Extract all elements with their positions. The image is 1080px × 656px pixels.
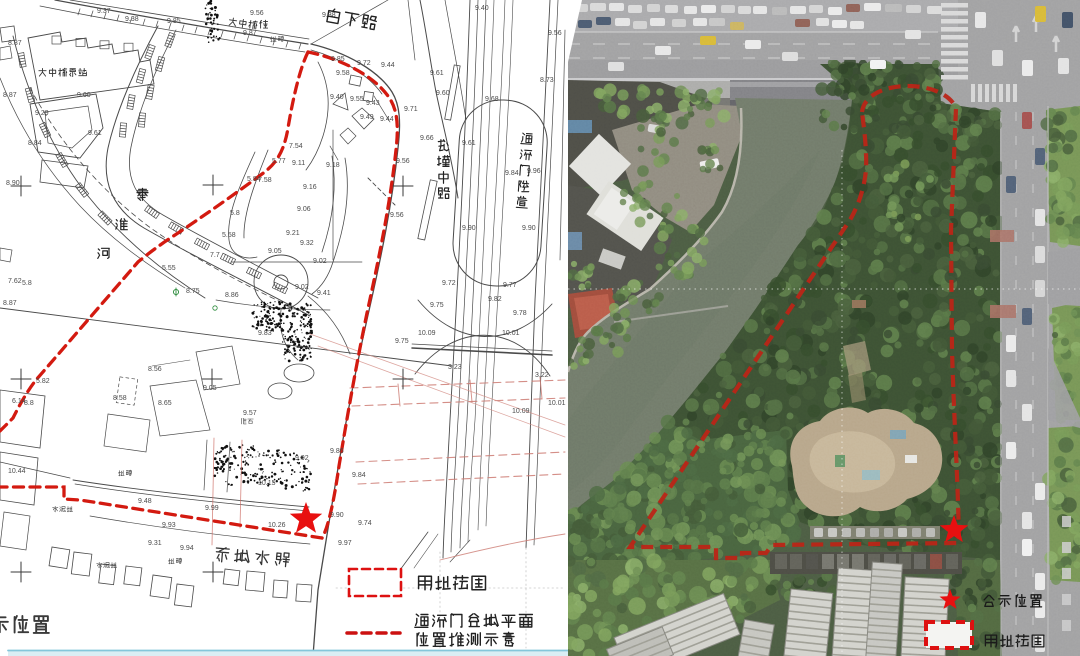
svg-text:9.60: 9.60 [436, 90, 450, 97]
svg-text:8.87: 8.87 [8, 40, 22, 47]
svg-text:9.40: 9.40 [475, 5, 489, 12]
svg-text:9.68: 9.68 [485, 96, 499, 103]
svg-text:9.48: 9.48 [138, 498, 152, 505]
svg-text:10.01: 10.01 [548, 400, 566, 407]
svg-text:10.09: 10.09 [512, 408, 530, 415]
svg-text:8.58: 8.58 [113, 395, 127, 402]
svg-text:9.71: 9.71 [404, 106, 418, 113]
svg-text:5.77: 5.77 [272, 158, 286, 165]
svg-text:9.83: 9.83 [258, 330, 272, 337]
svg-text:9.90: 9.90 [462, 225, 476, 232]
svg-text:9.05: 9.05 [268, 248, 282, 255]
svg-text:9.16: 9.16 [303, 184, 317, 191]
svg-text:9.40: 9.40 [330, 94, 344, 101]
svg-text:9.32: 9.32 [300, 240, 314, 247]
svg-text:9.02: 9.02 [295, 284, 309, 291]
svg-text:9.56: 9.56 [390, 212, 404, 219]
svg-text:3.23: 3.23 [448, 364, 462, 371]
svg-text:9.11: 9.11 [292, 160, 305, 167]
svg-text:9.99: 9.99 [205, 505, 219, 512]
svg-text:9.56: 9.56 [548, 30, 562, 37]
svg-text:9.55: 9.55 [350, 96, 364, 103]
svg-text:9.29: 9.29 [35, 110, 49, 117]
svg-text:9.66: 9.66 [420, 135, 434, 142]
svg-text:5.8: 5.8 [230, 210, 240, 217]
svg-text:9.87: 9.87 [243, 30, 257, 37]
svg-text:8.73: 8.73 [540, 77, 554, 84]
svg-text:9.49: 9.49 [360, 114, 374, 121]
svg-text:10.44: 10.44 [8, 468, 26, 475]
svg-text:10.01: 10.01 [502, 330, 520, 337]
svg-text:5.8: 5.8 [22, 280, 32, 287]
svg-text:9.86: 9.86 [330, 448, 344, 455]
svg-text:9.74: 9.74 [358, 520, 372, 527]
svg-text:10.15: 10.15 [258, 480, 276, 487]
svg-text:9.94: 9.94 [180, 545, 194, 552]
svg-text:9.85: 9.85 [331, 56, 345, 63]
svg-text:9.75: 9.75 [430, 302, 444, 309]
svg-text:5.55: 5.55 [162, 265, 176, 272]
svg-text:9.61: 9.61 [462, 140, 476, 147]
svg-text:9.02: 9.02 [313, 258, 327, 265]
svg-text:8.87: 8.87 [3, 92, 17, 99]
svg-text:9.90: 9.90 [522, 225, 536, 232]
svg-text:9.93: 9.93 [162, 522, 176, 529]
svg-text:8.84: 8.84 [28, 140, 42, 147]
svg-text:9.61: 9.61 [88, 130, 102, 137]
svg-text:9.21: 9.21 [286, 230, 300, 237]
svg-text:8.87: 8.87 [3, 300, 17, 307]
svg-text:3.22: 3.22 [535, 372, 549, 379]
svg-text:9.58: 9.58 [336, 70, 350, 77]
svg-text:8.90: 8.90 [6, 180, 20, 187]
svg-text:9.61: 9.61 [430, 70, 444, 77]
svg-text:8.8: 8.8 [24, 400, 34, 407]
svg-text:8.75: 8.75 [186, 288, 200, 295]
svg-text:9.77: 9.77 [503, 282, 517, 289]
svg-text:10.09: 10.09 [418, 330, 436, 337]
svg-text:9.43: 9.43 [366, 100, 380, 107]
svg-text:9.41: 9.41 [317, 290, 331, 297]
svg-text:9.72: 9.72 [357, 60, 371, 67]
svg-text:9.18: 9.18 [326, 162, 340, 169]
svg-text:7.62: 7.62 [8, 278, 22, 285]
svg-text:7.58: 7.58 [258, 177, 272, 184]
svg-text:9.97: 9.97 [338, 540, 352, 547]
svg-text:9.90: 9.90 [330, 512, 344, 519]
svg-text:9.72: 9.72 [442, 280, 456, 287]
svg-text:8.86: 8.86 [225, 292, 239, 299]
svg-text:9.56: 9.56 [396, 158, 410, 165]
svg-text:9.78: 9.78 [513, 310, 527, 317]
svg-text:9.05: 9.05 [203, 385, 217, 392]
svg-text:7.7: 7.7 [210, 252, 220, 259]
svg-text:5.82: 5.82 [36, 378, 50, 385]
svg-text:10.26: 10.26 [268, 522, 286, 529]
svg-text:5.58: 5.58 [222, 232, 236, 239]
svg-text:9.60: 9.60 [77, 92, 91, 99]
svg-text:9.37: 9.37 [97, 8, 111, 15]
svg-text:9.82: 9.82 [488, 296, 502, 303]
svg-text:9.44: 9.44 [381, 62, 395, 69]
svg-text:9.56: 9.56 [250, 10, 264, 17]
svg-text:9.92: 9.92 [295, 455, 309, 462]
svg-text:7.54: 7.54 [289, 143, 303, 150]
svg-text:9.31: 9.31 [148, 540, 162, 547]
svg-text:9.75: 9.75 [395, 338, 409, 345]
svg-text:8.65: 8.65 [158, 400, 172, 407]
svg-text:9.06: 9.06 [297, 206, 311, 213]
svg-text:9.44: 9.44 [380, 116, 394, 123]
svg-text:8.56: 8.56 [148, 366, 162, 373]
svg-text:9.85: 9.85 [167, 18, 181, 25]
svg-text:9.84: 9.84 [352, 472, 366, 479]
svg-text:9.57: 9.57 [243, 410, 257, 417]
svg-text:9.84: 9.84 [505, 170, 519, 177]
svg-text:9.38: 9.38 [125, 16, 139, 23]
